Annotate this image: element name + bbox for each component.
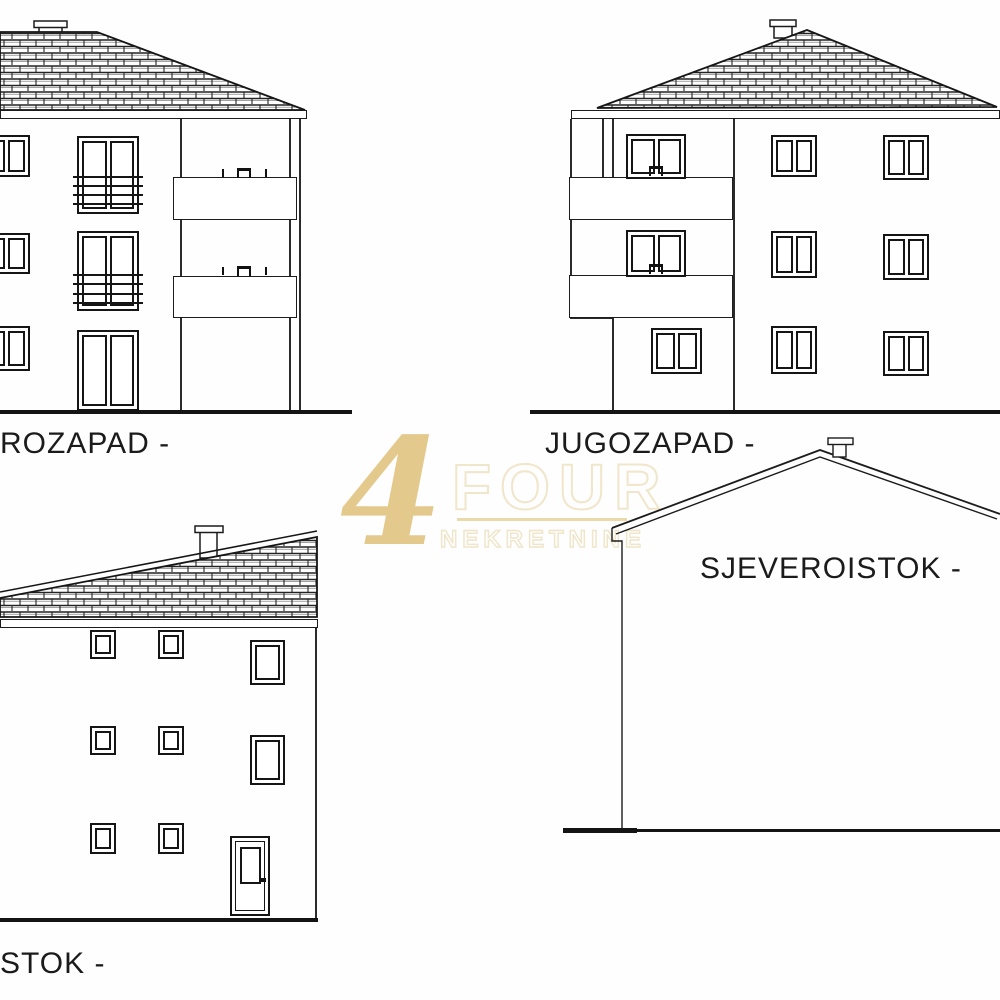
window	[883, 331, 929, 376]
table-icon	[237, 266, 251, 276]
railing-post	[222, 169, 224, 177]
window	[158, 823, 184, 854]
eave-fascia	[0, 619, 318, 628]
roof-southeast	[0, 531, 317, 617]
balcony-parapet	[173, 276, 297, 318]
door-glass	[240, 847, 261, 884]
wall-edge	[299, 119, 301, 411]
loggia-column	[612, 119, 614, 178]
railing-post	[265, 169, 267, 177]
window	[158, 630, 184, 659]
window	[771, 135, 817, 177]
roof-northwest	[0, 32, 305, 110]
window	[0, 326, 30, 371]
entry-door	[230, 836, 270, 916]
french-door	[77, 330, 139, 411]
window	[90, 630, 116, 659]
railing-post	[265, 267, 267, 275]
balcony-parapet	[569, 177, 733, 220]
railing-post	[222, 267, 224, 275]
table-icon	[649, 264, 663, 274]
wall-line	[733, 119, 735, 411]
eave-fascia	[571, 110, 1000, 119]
wall-line	[180, 119, 182, 411]
ground-line	[530, 410, 1000, 414]
window-railing	[73, 274, 143, 304]
roofs-linework	[0, 0, 1000, 1000]
window	[250, 640, 285, 685]
ground-line	[0, 410, 352, 414]
window	[883, 135, 929, 180]
window	[90, 823, 116, 854]
wall-line	[612, 317, 614, 411]
loggia-column	[602, 119, 604, 178]
label-northeast: SJEVEROISTOK -	[700, 552, 962, 586]
table-icon	[237, 168, 251, 178]
window	[771, 326, 817, 374]
window	[883, 234, 929, 280]
wall-line	[289, 119, 291, 411]
table-icon	[649, 166, 663, 176]
window	[651, 328, 702, 374]
ground-line	[563, 829, 1000, 832]
window	[0, 135, 30, 177]
door-handle	[259, 878, 266, 882]
ground-line	[0, 918, 318, 922]
label-southwest: JUGOZAPAD -	[545, 427, 755, 461]
window-railing	[73, 176, 143, 205]
balcony-parapet	[569, 275, 733, 318]
gable-northeast	[612, 438, 1000, 830]
eave-fascia	[0, 110, 307, 119]
window	[0, 233, 30, 274]
label-northwest: ROZAPAD -	[0, 427, 170, 461]
window	[158, 726, 184, 755]
label-southeast: STOK -	[0, 947, 105, 981]
balcony-parapet	[173, 177, 297, 220]
elevation-sheet: 4 FOUR NEKRETNINE	[0, 0, 1000, 1000]
window	[250, 735, 285, 785]
roof-southwest	[597, 30, 997, 108]
wall-edge	[315, 628, 317, 919]
window	[771, 231, 817, 278]
window	[90, 726, 116, 755]
